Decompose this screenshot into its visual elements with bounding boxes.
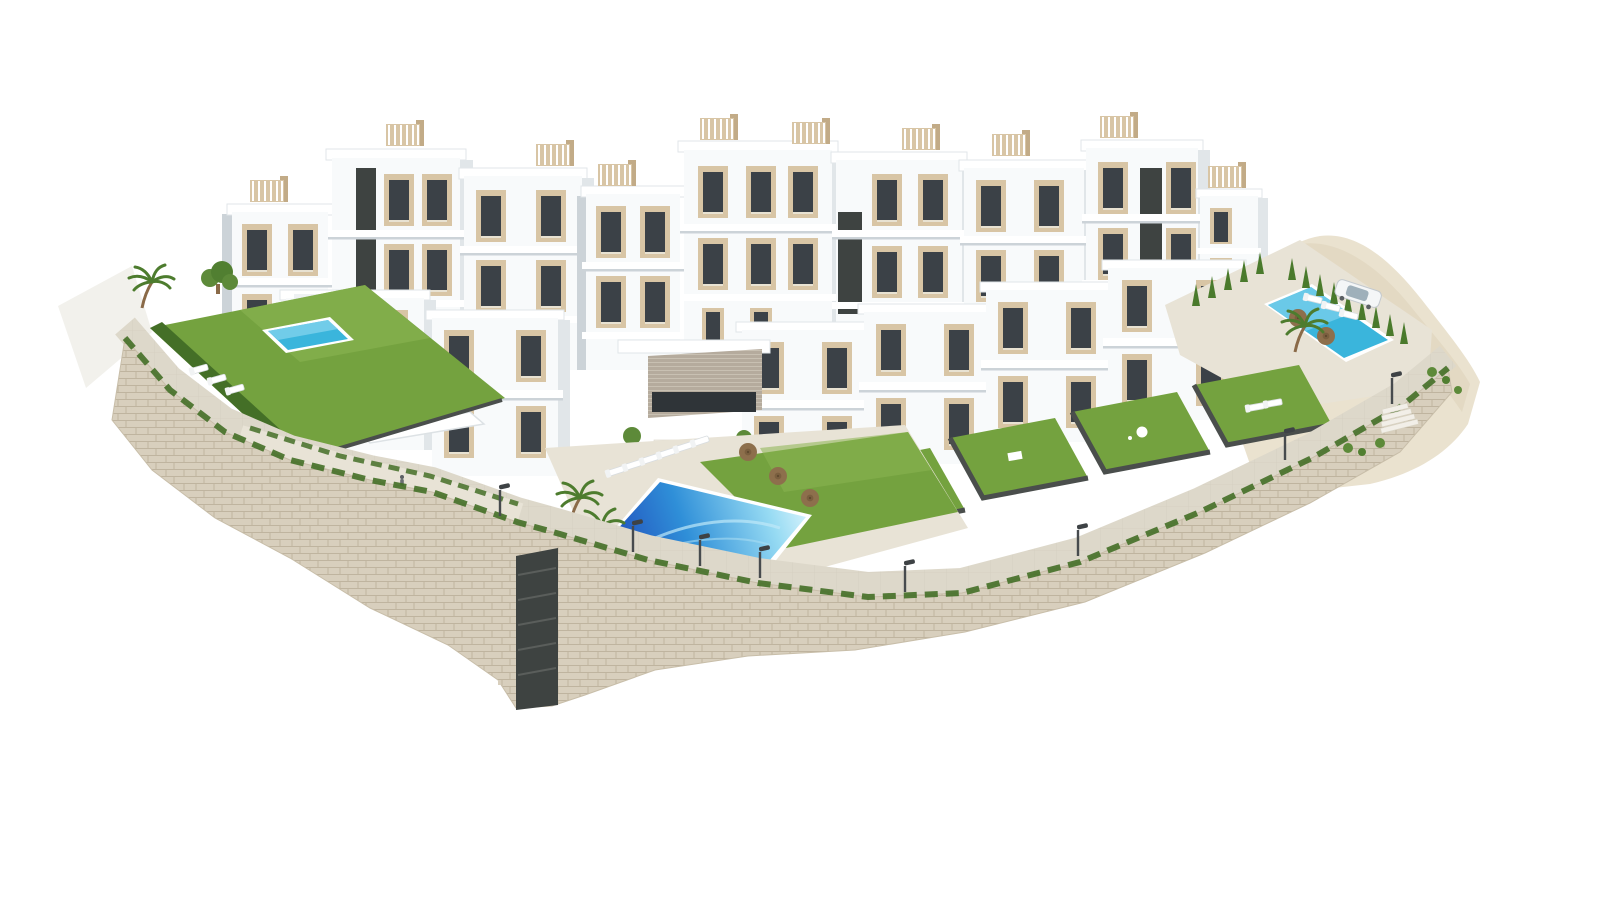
architectural-render: Aerial 3D render of a white hillside apa… [0, 0, 1600, 900]
apartment-block [577, 160, 685, 370]
apartment-block [678, 114, 845, 356]
clubhouse-glazing [652, 392, 756, 412]
render-canvas: Aerial 3D render of a white hillside apa… [0, 0, 1600, 900]
